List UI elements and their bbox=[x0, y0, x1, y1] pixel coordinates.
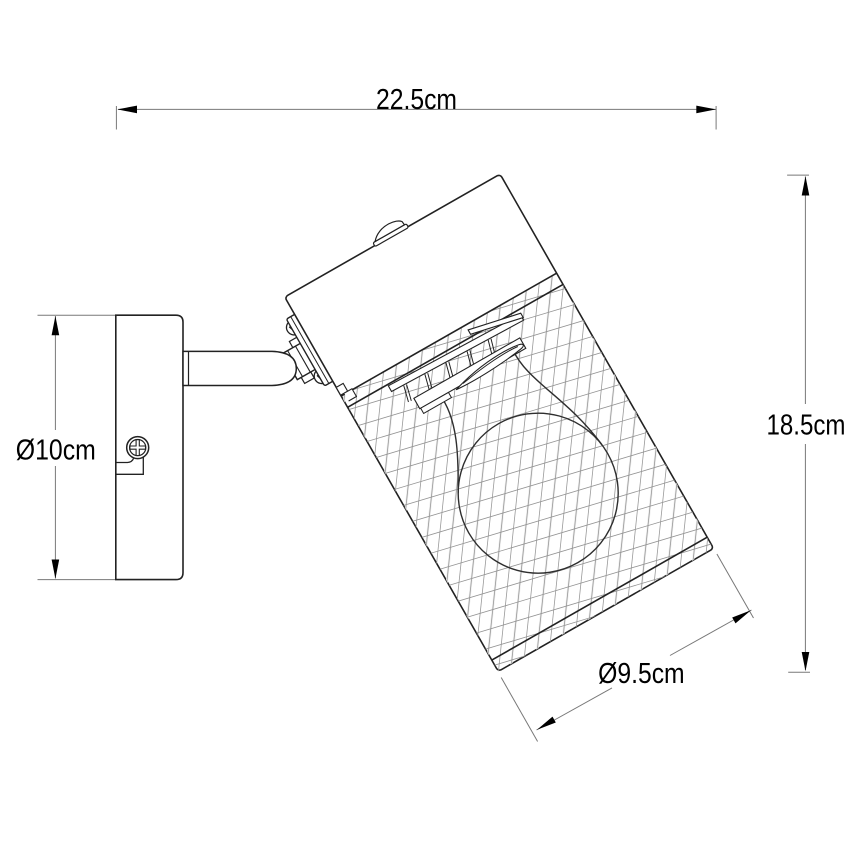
svg-text:22.5cm: 22.5cm bbox=[376, 84, 457, 116]
svg-text:Ø9.5cm: Ø9.5cm bbox=[598, 658, 685, 690]
svg-text:18.5cm: 18.5cm bbox=[767, 410, 846, 442]
svg-text:Ø10cm: Ø10cm bbox=[16, 435, 96, 467]
